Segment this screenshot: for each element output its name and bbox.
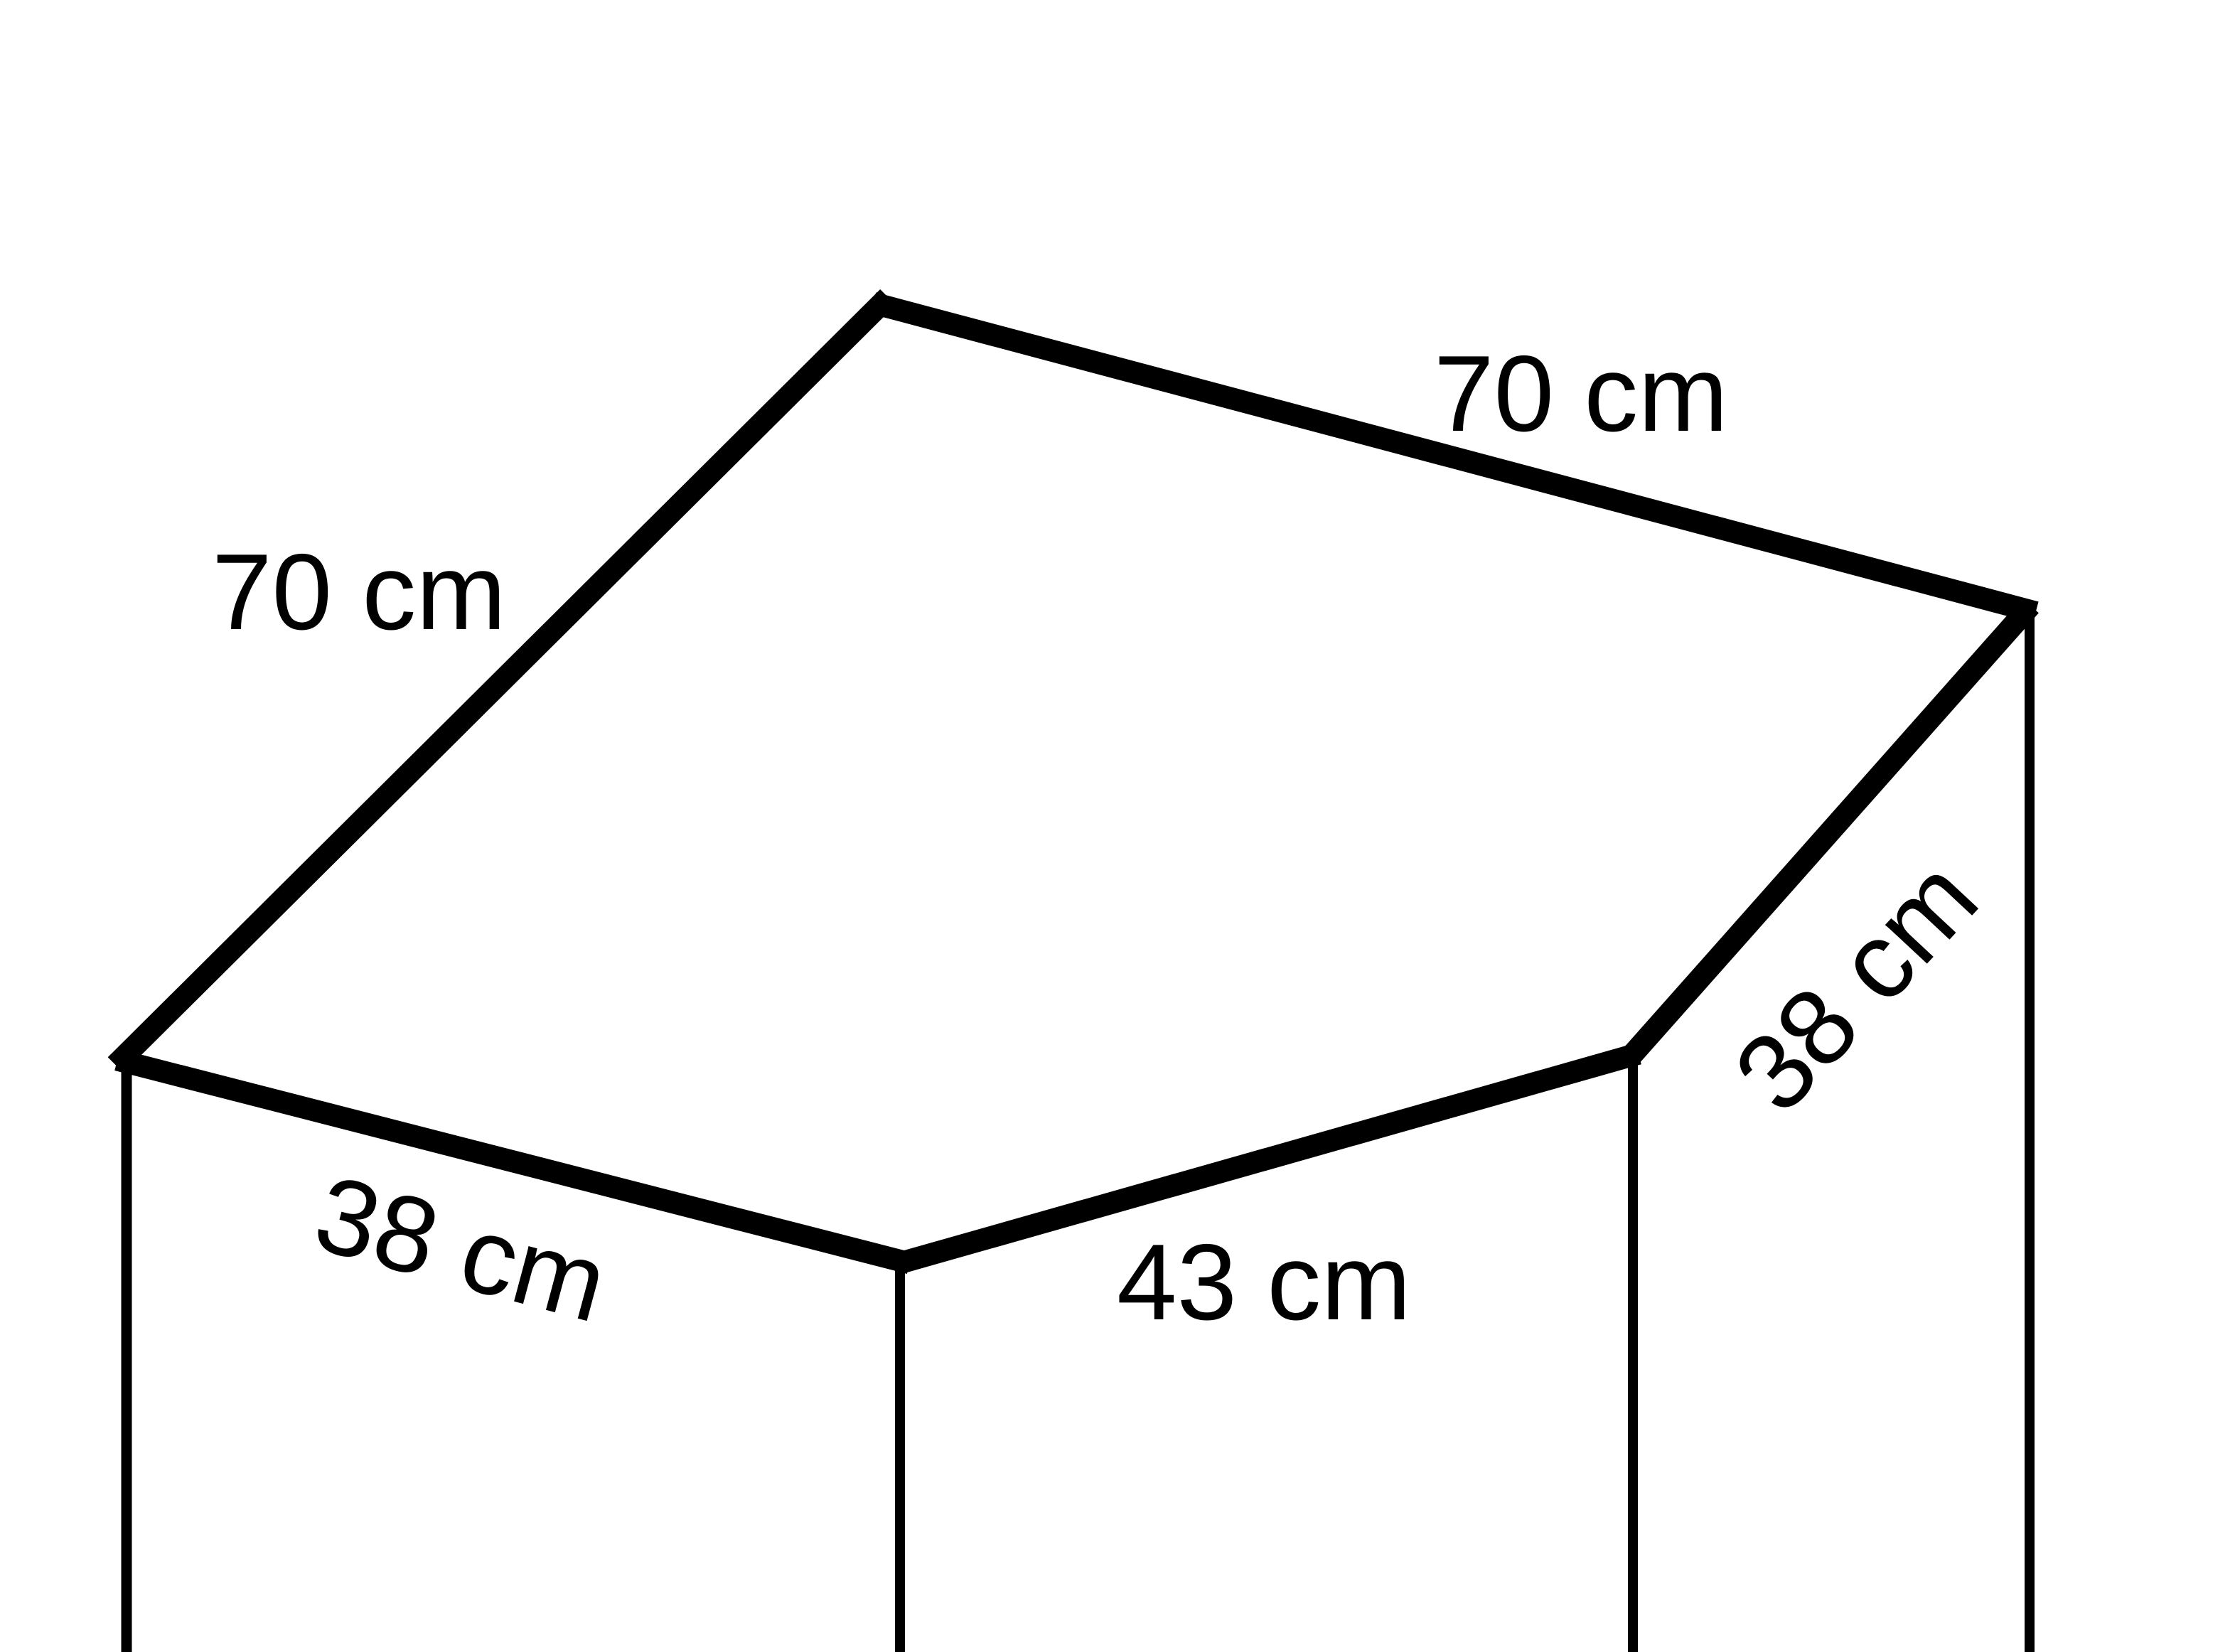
svg-text:43 cm: 43 cm xyxy=(1117,1222,1411,1343)
svg-text:70 cm: 70 cm xyxy=(1434,333,1728,454)
svg-text:70 cm: 70 cm xyxy=(212,532,506,653)
